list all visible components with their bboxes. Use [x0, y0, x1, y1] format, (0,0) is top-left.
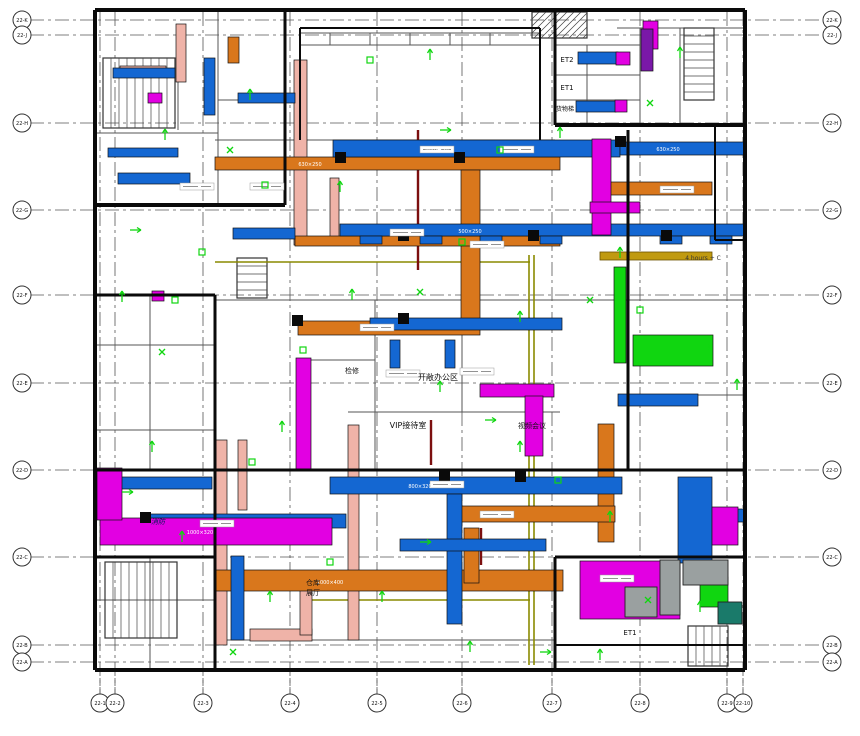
fire-damper-icon — [515, 471, 526, 482]
duct-size-label: 630×250 — [298, 162, 321, 168]
duct-magenta — [97, 468, 122, 520]
duct-orange — [600, 182, 712, 195]
ramp-hatch — [562, 13, 587, 38]
room-label: 消防 — [151, 518, 166, 526]
grid-bubble-label: 22-G — [16, 208, 28, 214]
diffuser-icon — [249, 459, 255, 465]
grid-bubble-label: 22-6 — [456, 701, 467, 707]
grid-bubble-label: 22-7 — [546, 701, 557, 707]
grid-bubble-label: 22-9 — [721, 701, 732, 707]
grid-bubble-label: 22-D — [826, 468, 838, 474]
floor-plan-page: 800×250630×250500×250800×3201000×3201000… — [0, 0, 860, 736]
duct-blue — [678, 477, 712, 563]
grid-bubble-label: 22-10 — [736, 701, 751, 707]
duct-magenta — [590, 202, 640, 213]
fire-damper-icon — [439, 471, 450, 482]
ramp-hatch — [532, 12, 546, 26]
duct-blue — [204, 58, 215, 115]
grid-bubble-label: 22-C — [16, 555, 28, 561]
grid-bubble-label: 22-H — [16, 121, 28, 127]
fire-damper-icon — [140, 512, 151, 523]
equipment-unit — [683, 560, 728, 585]
room-label: 展厅 — [306, 589, 320, 597]
fire-damper-icon — [528, 230, 539, 241]
equipment-unit — [718, 602, 742, 624]
duct-blue — [420, 236, 442, 244]
duct-blue — [118, 173, 190, 184]
duct-size-label: 1000×320 — [187, 530, 213, 536]
duct-blue — [620, 142, 745, 155]
duct-salmon — [238, 440, 247, 510]
grid-bubble-label: 22-G — [826, 208, 838, 214]
duct-salmon — [330, 178, 339, 245]
duct-blue — [447, 494, 462, 624]
stair-well — [684, 28, 714, 100]
duct-blue — [113, 68, 175, 78]
grid-bubble-label: 22-E — [16, 381, 27, 387]
duct-orange — [464, 528, 479, 583]
duct-blue — [618, 394, 698, 406]
fire-damper-icon — [292, 315, 303, 326]
grid-bubble-label: 22-1 — [94, 701, 105, 707]
grid-bubble-label: 22-8 — [634, 701, 645, 707]
duct-orange — [228, 37, 239, 63]
room-label: ET2 — [560, 56, 573, 64]
diffuser-icon — [172, 297, 178, 303]
duct-magenta — [296, 358, 311, 470]
ramp-hatch — [532, 12, 539, 19]
fire-damper-icon — [398, 313, 409, 324]
room-label: 视频会议 — [518, 421, 546, 430]
stair-well — [237, 258, 267, 298]
duct-blue — [540, 236, 562, 244]
grid-bubble-label: 22-A — [16, 660, 28, 666]
duct-magenta — [480, 384, 554, 397]
grid-bubble-label: 22-B — [16, 643, 28, 649]
grid-bubble-label: 22-2 — [109, 701, 120, 707]
room-label: 开敞办公区 — [418, 372, 458, 382]
room-label: 仓库 — [306, 578, 320, 587]
duct-blue — [400, 539, 546, 551]
duct-green — [633, 335, 713, 366]
duct-magenta — [712, 507, 738, 545]
duct-size-label: 1000×400 — [317, 580, 343, 586]
duct-orange — [215, 157, 560, 170]
fire-damper-icon — [454, 152, 465, 163]
diffuser-icon — [199, 249, 205, 255]
duct-salmon — [176, 24, 186, 82]
grid-bubble-label: 22-B — [826, 643, 838, 649]
duct-blue — [576, 101, 616, 112]
ramp-hatch — [555, 12, 581, 38]
duct-size-label: 500×250 — [458, 229, 481, 235]
duct-blue — [333, 140, 620, 157]
duct-blue — [330, 477, 622, 494]
grid-bubble-label: 22-K — [826, 18, 838, 24]
duct-magenta — [616, 52, 630, 65]
duct-orange — [461, 170, 480, 328]
duct-magenta — [148, 93, 162, 103]
diffuser-icon — [367, 57, 373, 63]
room-label: VIP接待室 — [390, 420, 427, 430]
duct-size-label: 800×320 — [408, 484, 431, 490]
grid-bubble-label: 22-5 — [371, 701, 382, 707]
fire-damper-icon — [335, 152, 346, 163]
duct-blue — [360, 236, 382, 244]
equipment-unit — [625, 587, 657, 617]
duct-blue — [233, 228, 295, 239]
fire-damper-icon — [661, 230, 672, 241]
ramp-hatch — [576, 27, 587, 38]
grid-bubble-label: 22-J — [827, 33, 837, 39]
duct-size-label: 630×250 — [656, 147, 679, 153]
grid-bubble-label: 22-4 — [284, 701, 295, 707]
room-label: ET1 — [560, 84, 573, 92]
duct-size-label: 800×250 — [425, 147, 448, 153]
duct-orange — [215, 570, 563, 591]
duct-blue — [108, 148, 178, 157]
grid-bubble-label: 22-E — [826, 381, 837, 387]
grid-bubble-label: 22-C — [826, 555, 838, 561]
grid-bubble-label: 22-H — [826, 121, 838, 127]
diffuser-icon — [300, 347, 306, 353]
room-label: 货物梯 — [556, 105, 574, 113]
fire-damper-icon — [615, 136, 626, 147]
grid-bubble-label: 22-K — [16, 18, 28, 24]
grid-bubble-label: 22-3 — [197, 701, 208, 707]
diffuser-icon — [327, 559, 333, 565]
grid-bubble-label: 22-A — [826, 660, 838, 666]
grid-bubble-label: 22-F — [826, 293, 837, 299]
room-label: ET1 — [623, 629, 636, 637]
grid-bubble-label: 22-D — [16, 468, 28, 474]
equipment-unit — [660, 560, 680, 615]
duct-magenta — [592, 139, 611, 235]
grid-bubble-label: 22-J — [17, 33, 27, 39]
room-label: 4 hours + C — [685, 255, 721, 262]
duct-blue — [445, 340, 455, 368]
duct-blue — [390, 340, 400, 368]
grid-bubble-label: 22-F — [16, 293, 27, 299]
floor-plan-canvas: 800×250630×250500×250800×3201000×3201000… — [0, 0, 860, 736]
duct-green — [614, 267, 626, 363]
duct-magenta — [615, 100, 627, 112]
duct-blue — [578, 52, 618, 64]
duct-blue — [231, 556, 244, 640]
duct-purple — [641, 29, 653, 71]
room-label: 检修 — [345, 366, 359, 375]
duct-salmon — [348, 425, 359, 640]
